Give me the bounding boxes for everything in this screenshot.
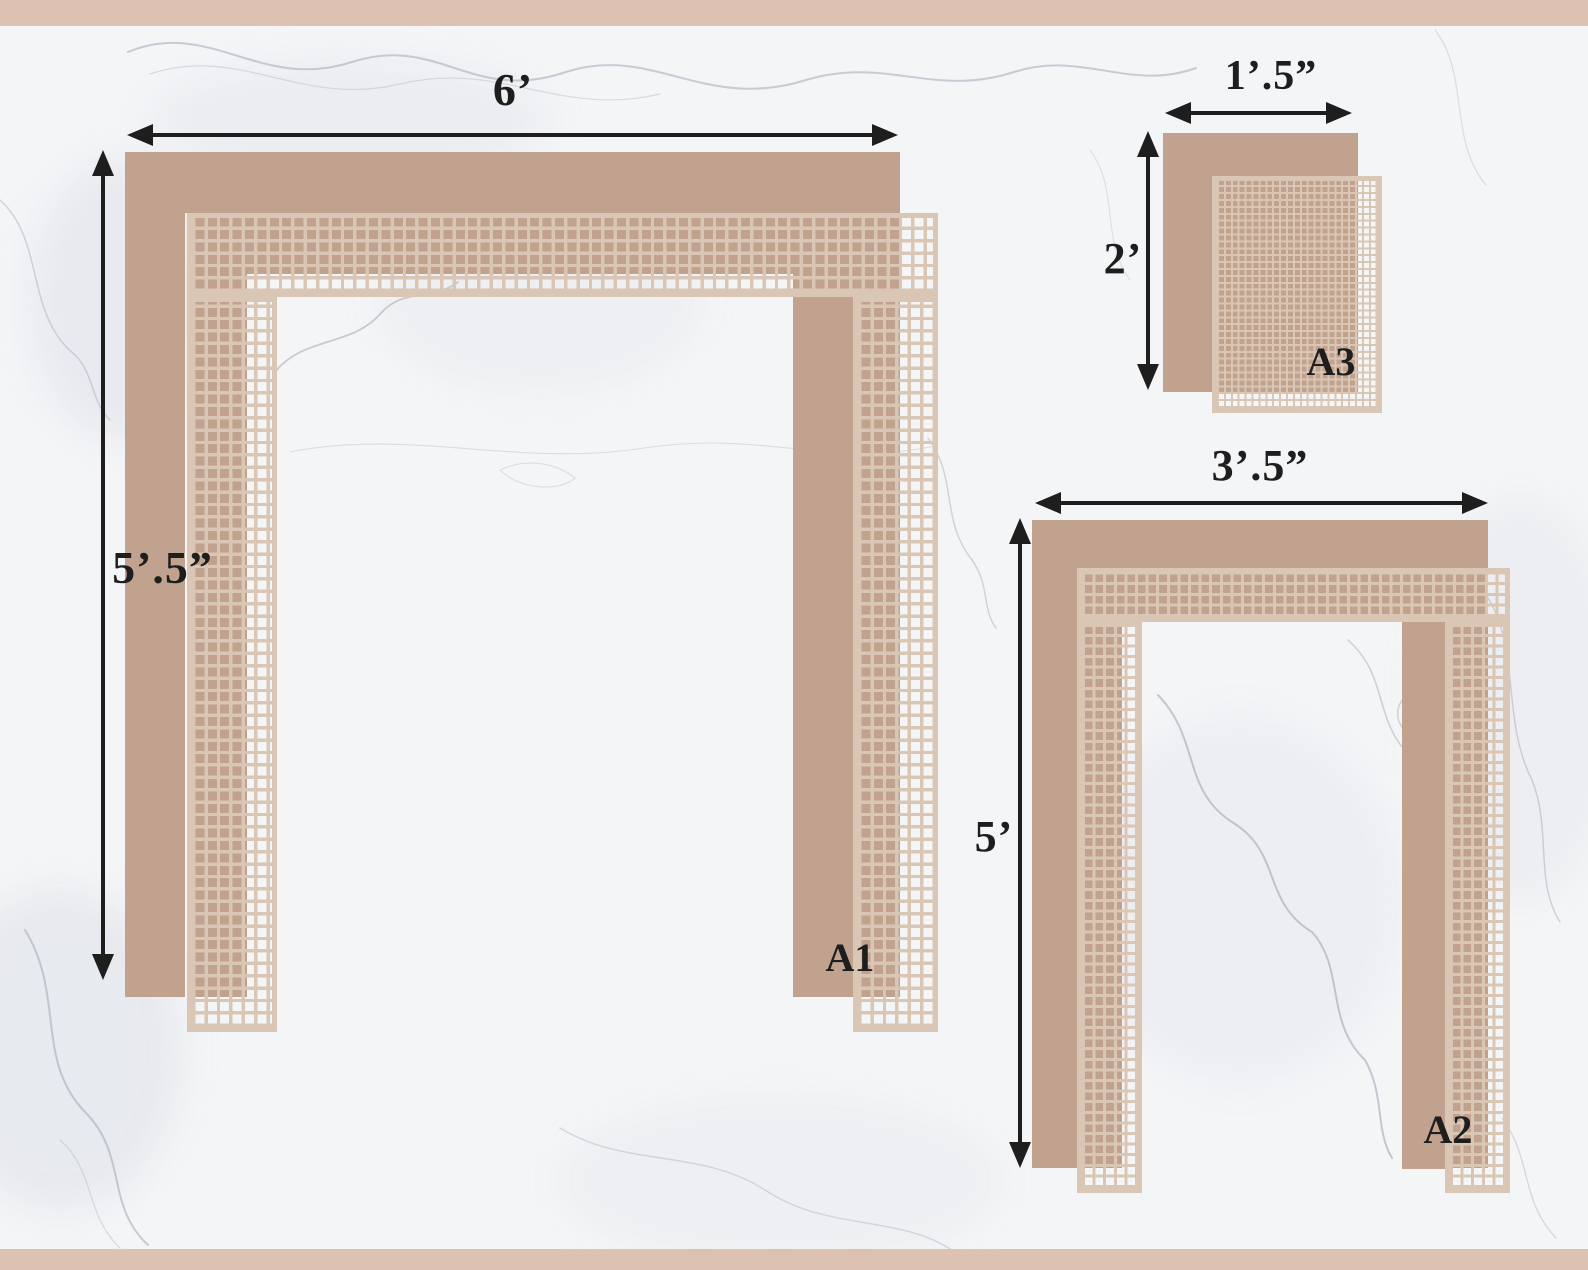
arrow-head-right xyxy=(872,124,898,146)
a2-mosaic-mesh-left xyxy=(1077,622,1142,1193)
a1-back-panel-top xyxy=(125,152,900,213)
a1-back-panel-left xyxy=(125,213,185,997)
a1-mosaic-mesh-right xyxy=(853,297,938,1032)
a3-width-dimension: 1’.5” xyxy=(1191,54,1351,98)
arrow-head-down xyxy=(92,954,114,980)
bottom-border-strip xyxy=(0,1249,1588,1270)
a2-width-dimension: 3’.5” xyxy=(1180,443,1340,489)
arrow-head-right xyxy=(1462,492,1488,514)
a2-mosaic-mesh-top xyxy=(1077,568,1510,622)
arrow-line xyxy=(1183,111,1334,115)
a1-width-dimension: 6’ xyxy=(443,66,583,114)
a1-area-label: A1 xyxy=(815,938,885,978)
a1-width-arrow xyxy=(127,124,898,146)
tile-layout-diagram: { "colors": { "border_strip": "#DDC2B1",… xyxy=(0,0,1588,1270)
a1-mid-panel-right xyxy=(793,274,853,997)
arrow-line xyxy=(145,133,880,137)
a3-height-dimension: 2’ xyxy=(1083,236,1163,282)
a2-back-panel-top xyxy=(1032,520,1488,568)
a3-area-label: A3 xyxy=(1295,342,1367,382)
a3-width-arrow xyxy=(1165,102,1352,124)
a1-mosaic-mesh-top xyxy=(187,213,938,297)
a1-mosaic-mesh-left xyxy=(187,297,277,1032)
arrow-head-down xyxy=(1009,1142,1031,1168)
top-border-strip xyxy=(0,0,1588,26)
arrow-line xyxy=(1053,501,1470,505)
arrow-head-down xyxy=(1137,364,1159,390)
a2-width-arrow xyxy=(1035,492,1488,514)
a2-height-dimension: 5’ xyxy=(954,814,1034,860)
a2-back-panel-left xyxy=(1032,568,1077,1168)
a2-area-label: A2 xyxy=(1412,1110,1484,1150)
arrow-head-right xyxy=(1326,102,1352,124)
a2-mid-panel-right xyxy=(1402,614,1447,1169)
a1-height-dimension: 5’.5” xyxy=(80,544,245,592)
